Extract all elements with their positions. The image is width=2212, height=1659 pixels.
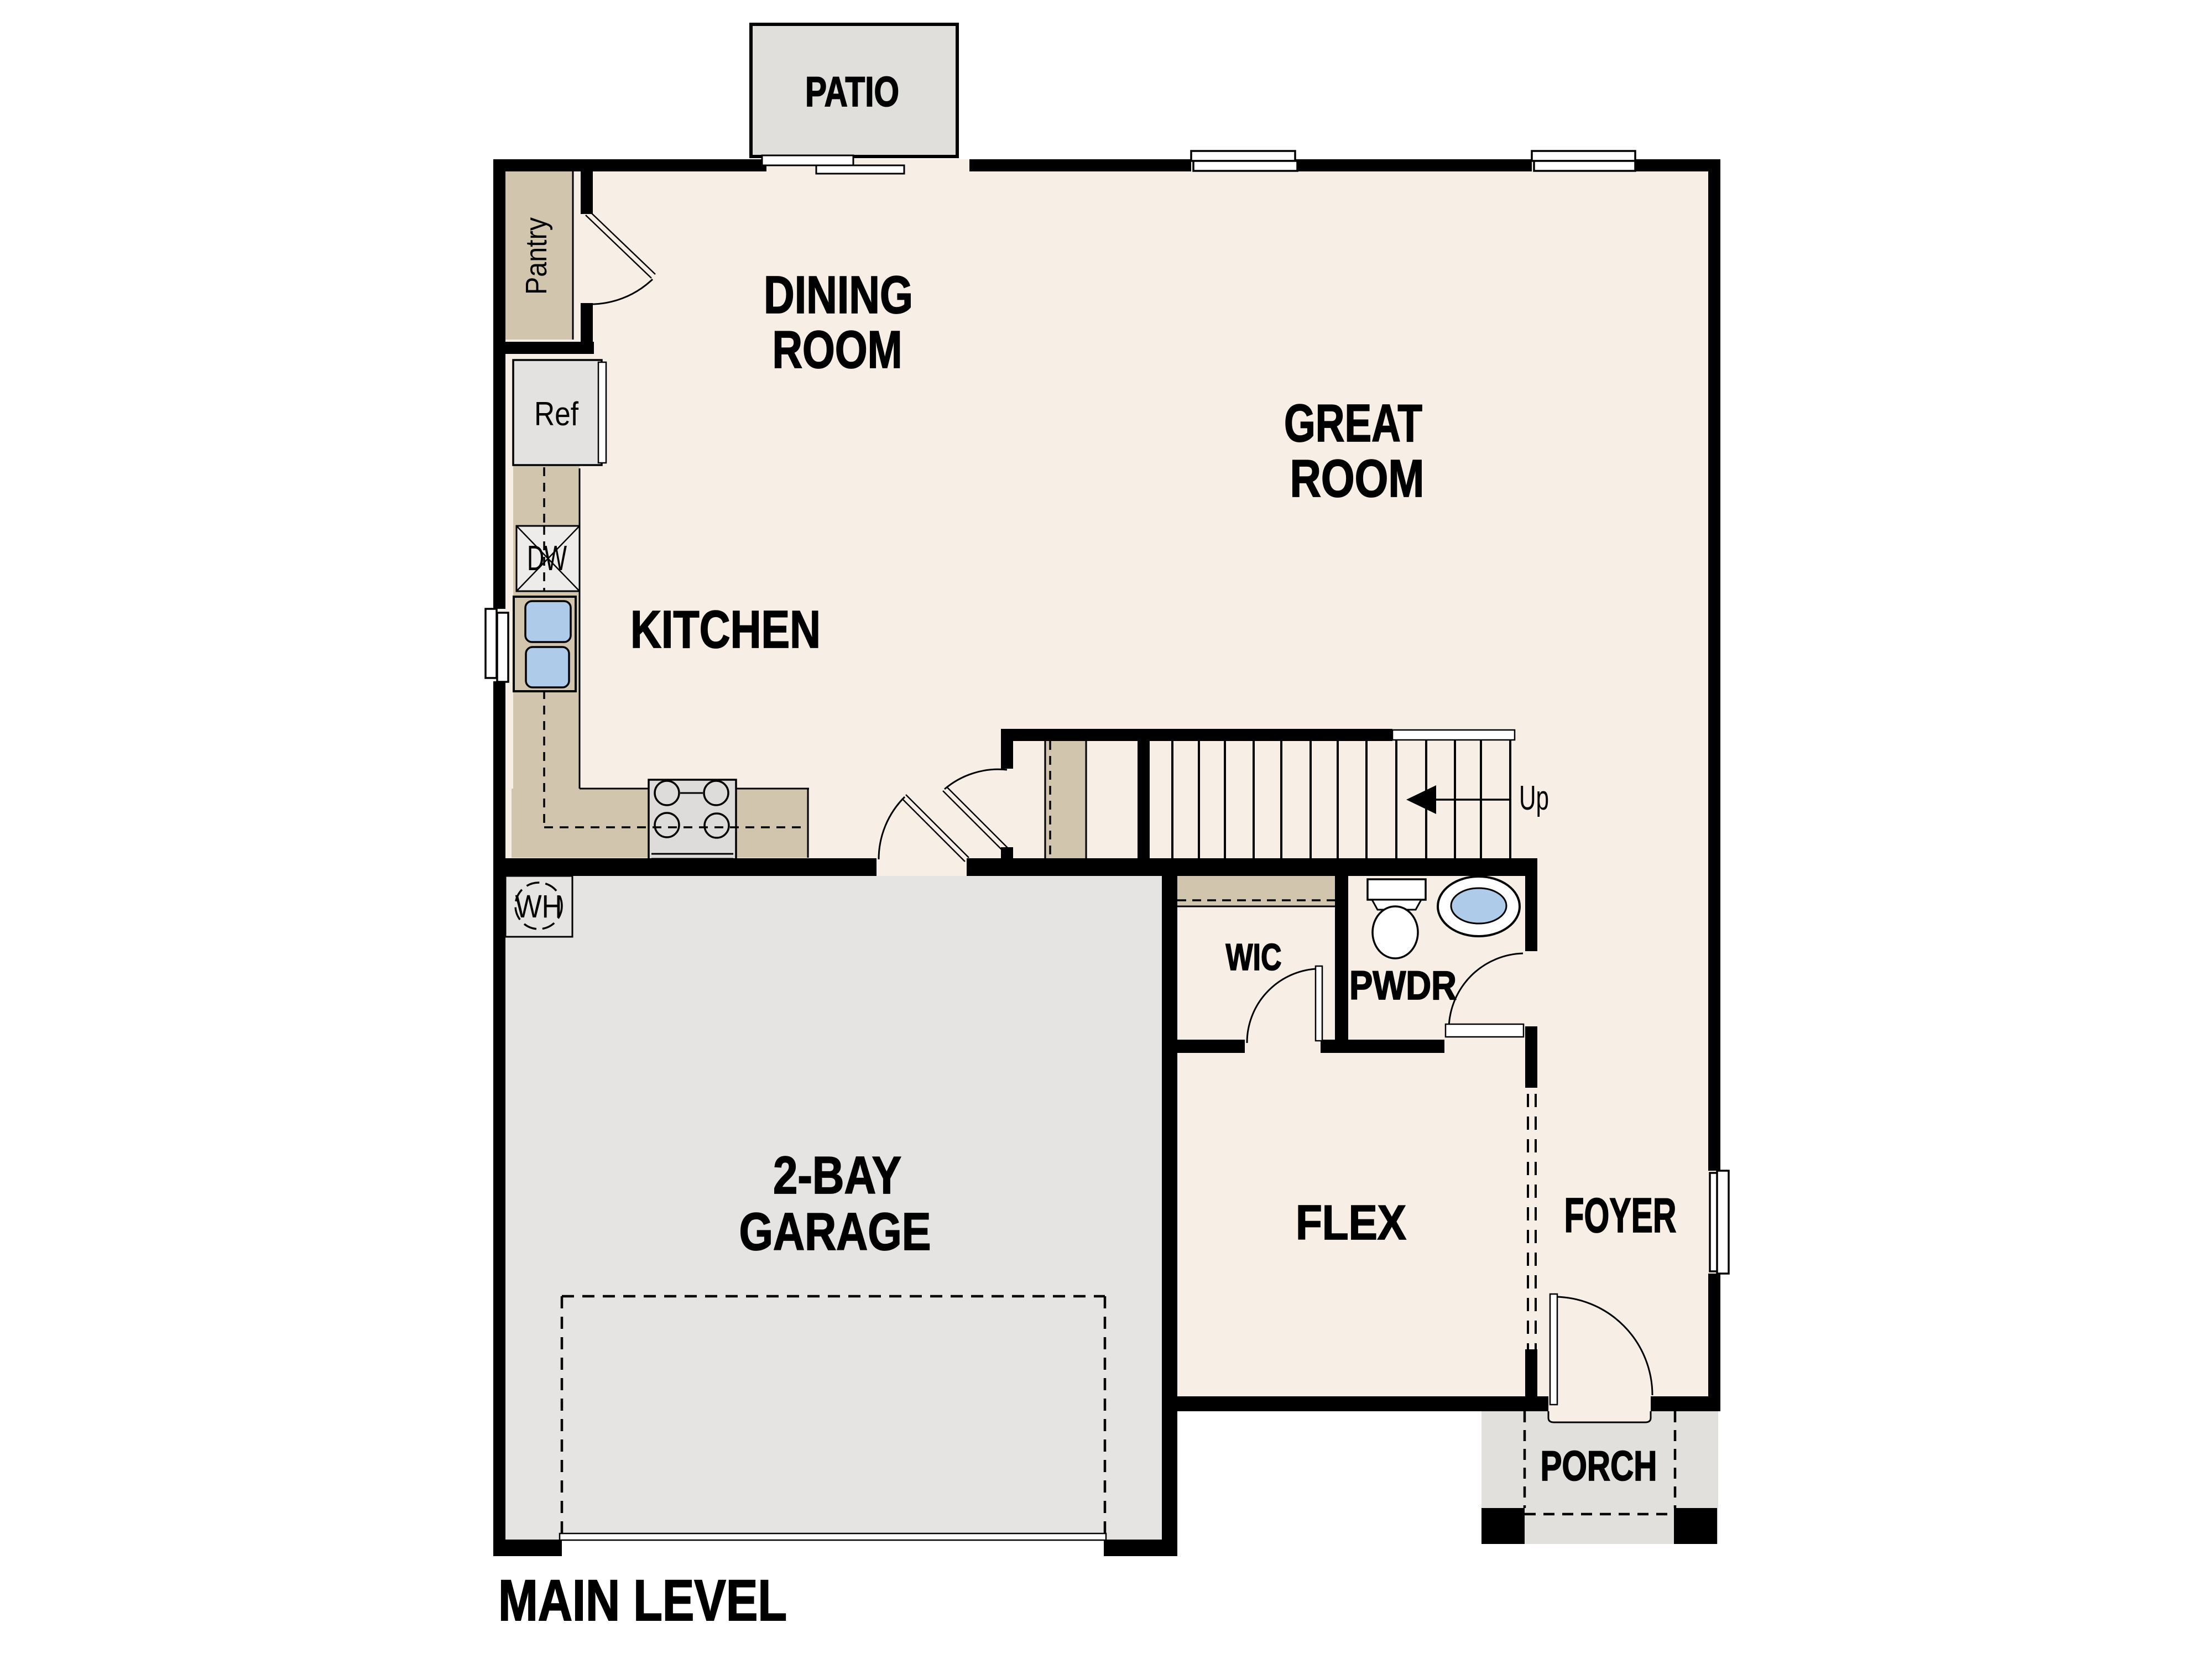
- svg-text:Up: Up: [1519, 779, 1549, 817]
- svg-text:WIC: WIC: [1226, 936, 1282, 978]
- svg-text:Ref: Ref: [534, 395, 578, 432]
- svg-text:DINING: DINING: [764, 265, 913, 325]
- svg-text:ROOM: ROOM: [1290, 449, 1425, 508]
- svg-text:MAIN LEVEL: MAIN LEVEL: [498, 1568, 787, 1633]
- svg-text:FLEX: FLEX: [1296, 1195, 1406, 1250]
- svg-text:GARAGE: GARAGE: [739, 1202, 931, 1261]
- svg-text:ROOM: ROOM: [773, 320, 902, 379]
- svg-text:PORCH: PORCH: [1541, 1443, 1657, 1490]
- svg-text:FOYER: FOYER: [1564, 1188, 1677, 1243]
- svg-text:PWDR: PWDR: [1349, 963, 1457, 1008]
- svg-text:DW: DW: [527, 538, 567, 578]
- svg-text:PATIO: PATIO: [805, 69, 899, 116]
- svg-text:GREAT: GREAT: [1284, 394, 1422, 453]
- svg-text:WH: WH: [515, 889, 562, 925]
- svg-text:KITCHEN: KITCHEN: [630, 600, 821, 659]
- svg-text:2-BAY: 2-BAY: [773, 1146, 901, 1205]
- svg-text:Pantry: Pantry: [520, 217, 553, 295]
